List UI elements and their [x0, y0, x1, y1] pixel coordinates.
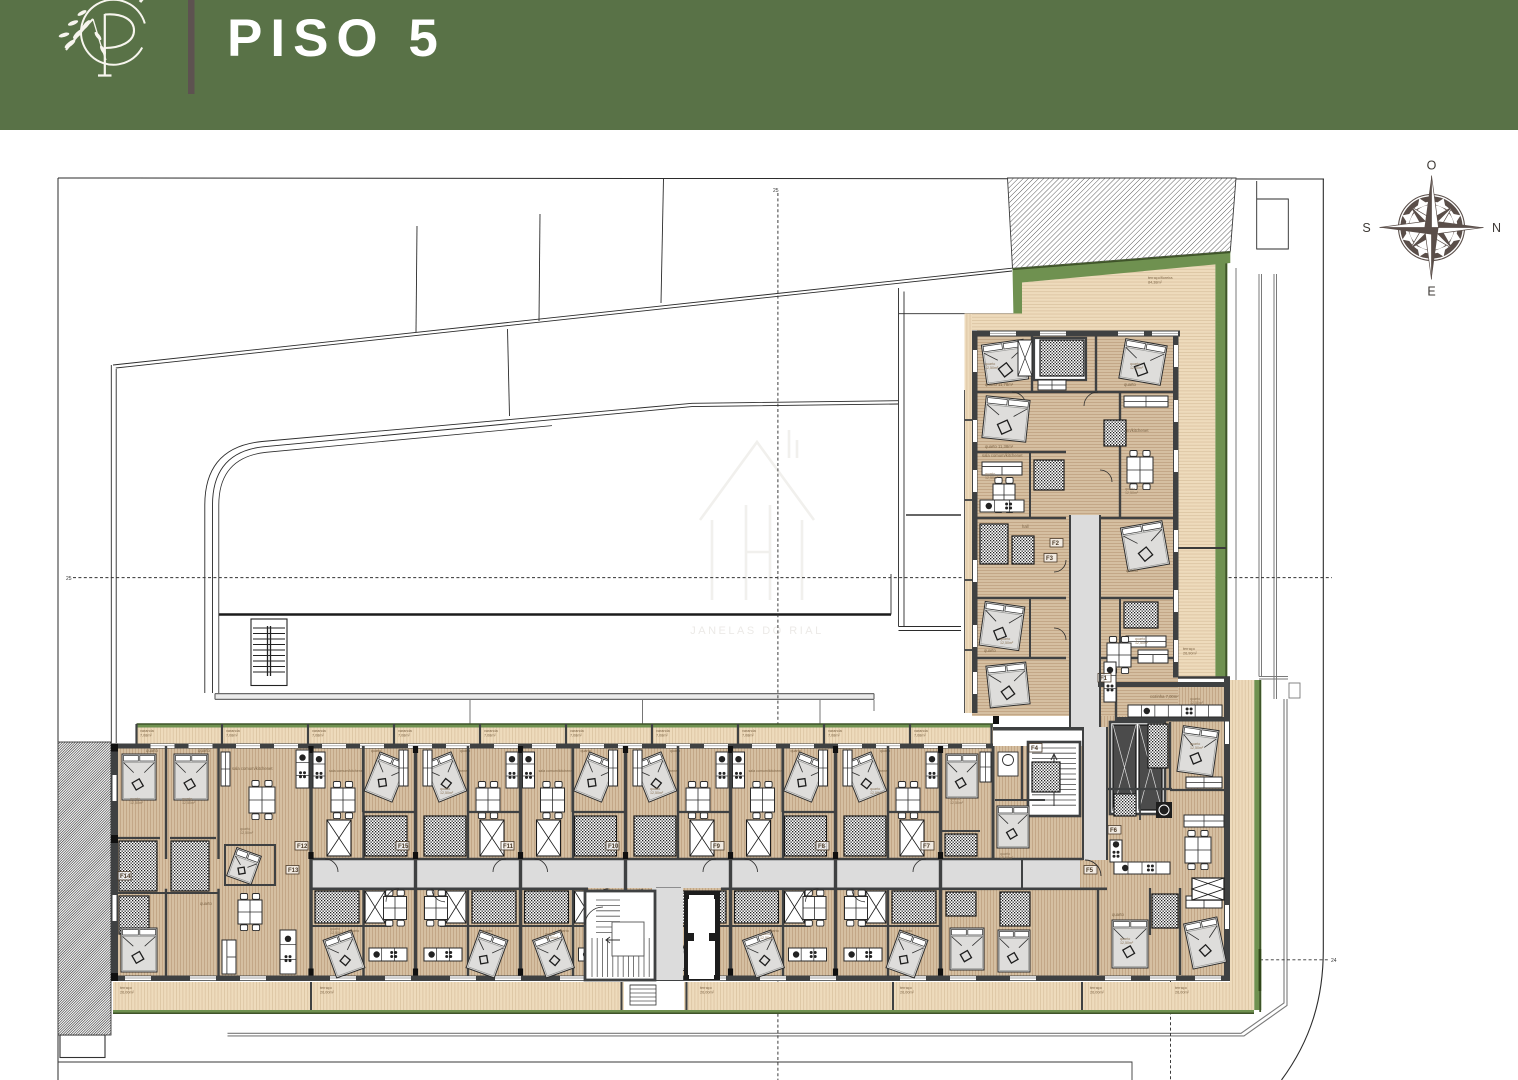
- svg-text:varanda: varanda: [398, 729, 413, 733]
- svg-text:12,50m²: 12,50m²: [440, 791, 454, 795]
- svg-text:12,50m²: 12,50m²: [330, 931, 344, 935]
- svg-text:terraço: terraço: [120, 986, 132, 990]
- svg-text:quarto: quarto: [146, 748, 159, 753]
- svg-text:S: S: [1362, 221, 1370, 235]
- svg-text:sala comum/kitchenet: sala comum/kitchenet: [982, 453, 1023, 458]
- svg-text:JANELAS DO RIAL: JANELAS DO RIAL: [690, 625, 823, 637]
- svg-text:F13: F13: [288, 868, 299, 874]
- svg-text:quarto: quarto: [1124, 382, 1137, 387]
- svg-text:26,00m²: 26,00m²: [320, 991, 335, 995]
- svg-text:7,08m²: 7,08m²: [828, 734, 841, 738]
- svg-text:25: 25: [773, 188, 779, 194]
- svg-text:quarto: quarto: [1126, 568, 1139, 573]
- svg-text:quarto: quarto: [791, 749, 801, 753]
- svg-text:12,50m²: 12,50m²: [1135, 641, 1149, 645]
- svg-text:sala comum/kitchenet: sala comum/kitchenet: [749, 769, 784, 773]
- svg-text:12,50m²: 12,50m²: [1120, 941, 1134, 945]
- svg-text:E: E: [1427, 285, 1435, 299]
- svg-text:varanda: varanda: [312, 729, 327, 733]
- svg-text:7,08m²: 7,08m²: [226, 734, 239, 738]
- svg-text:N: N: [1492, 221, 1501, 235]
- svg-text:7,08m²: 7,08m²: [656, 734, 669, 738]
- svg-text:12,50m²: 12,50m²: [1000, 641, 1014, 645]
- svg-text:sala comum/kitchenet: sala comum/kitchenet: [232, 766, 273, 771]
- svg-text:hall: hall: [1022, 524, 1029, 529]
- svg-text:84,38m²: 84,38m²: [1148, 281, 1163, 285]
- svg-text:12,50m²: 12,50m²: [985, 476, 999, 480]
- svg-text:12,50m²: 12,50m²: [650, 791, 664, 795]
- svg-text:F8: F8: [818, 844, 826, 850]
- svg-text:varanda: varanda: [484, 729, 499, 733]
- svg-text:12,50m²: 12,50m²: [870, 791, 884, 795]
- svg-text:12,50m²: 12,50m²: [950, 801, 964, 805]
- svg-text:quarto: quarto: [559, 929, 569, 933]
- svg-text:O: O: [1427, 159, 1437, 173]
- svg-text:terraço: terraço: [1183, 647, 1195, 651]
- svg-text:F15: F15: [398, 844, 409, 850]
- svg-text:quarto: quarto: [200, 901, 213, 906]
- svg-text:varanda: varanda: [226, 729, 241, 733]
- svg-text:F7: F7: [923, 844, 931, 850]
- svg-text:12,50m²: 12,50m²: [130, 801, 144, 805]
- svg-text:26,00m²: 26,00m²: [700, 991, 715, 995]
- svg-text:F4: F4: [1031, 746, 1039, 752]
- svg-text:quarto: quarto: [198, 748, 211, 753]
- svg-text:F11: F11: [503, 844, 514, 850]
- svg-text:12,50m²: 12,50m²: [240, 831, 254, 835]
- svg-text:terraço/floreira: terraço/floreira: [1148, 276, 1173, 280]
- svg-text:quarto 11,38m²: quarto 11,38m²: [985, 444, 1014, 449]
- svg-text:12,50m²: 12,50m²: [985, 366, 999, 370]
- svg-text:quarto: quarto: [349, 929, 359, 933]
- svg-text:26,90m²: 26,90m²: [1183, 652, 1198, 656]
- svg-text:quarto: quarto: [984, 648, 997, 653]
- svg-text:sala comum/kitchenet: sala comum/kitchenet: [329, 769, 364, 773]
- svg-text:26,00m²: 26,00m²: [1175, 991, 1190, 995]
- svg-text:F10: F10: [608, 844, 619, 850]
- svg-text:varanda: varanda: [656, 729, 671, 733]
- svg-text:7,08m²: 7,08m²: [140, 734, 153, 738]
- svg-text:12,50m²: 12,50m²: [1190, 746, 1204, 750]
- svg-text:12,50m²: 12,50m²: [760, 936, 774, 940]
- svg-text:varanda: varanda: [914, 729, 929, 733]
- svg-text:varanda: varanda: [140, 729, 155, 733]
- svg-text:12,50m²: 12,50m²: [182, 801, 196, 805]
- svg-text:26,00m²: 26,00m²: [120, 991, 135, 995]
- svg-text:F1: F1: [1100, 676, 1108, 682]
- svg-text:terraço: terraço: [1090, 986, 1102, 990]
- svg-text:7,08m²: 7,08m²: [312, 734, 325, 738]
- svg-text:PISO 5: PISO 5: [227, 9, 446, 68]
- svg-text:terraço: terraço: [900, 986, 912, 990]
- svg-text:12,50m²: 12,50m²: [1125, 491, 1139, 495]
- svg-text:terraço: terraço: [700, 986, 712, 990]
- svg-text:sala comum/kitchenet: sala comum/kitchenet: [539, 769, 574, 773]
- svg-text:cozinha 7,00m²: cozinha 7,00m²: [1150, 694, 1179, 699]
- svg-text:12,50m²: 12,50m²: [1190, 701, 1204, 705]
- svg-text:12,50m²: 12,50m²: [1000, 856, 1014, 860]
- svg-text:quarto: quarto: [902, 929, 912, 933]
- svg-text:quarto: quarto: [371, 749, 381, 753]
- svg-text:26,00m²: 26,00m²: [1090, 991, 1105, 995]
- svg-text:25: 25: [66, 576, 72, 582]
- svg-text:terraço: terraço: [1175, 986, 1187, 990]
- svg-text:12,50m²: 12,50m²: [1130, 366, 1144, 370]
- svg-text:7,08m²: 7,08m²: [914, 734, 927, 738]
- svg-text:7,08m²: 7,08m²: [398, 734, 411, 738]
- svg-text:varanda: varanda: [828, 729, 843, 733]
- svg-text:F12: F12: [297, 844, 308, 850]
- svg-text:quarto: quarto: [482, 929, 492, 933]
- svg-text:F14: F14: [120, 874, 131, 880]
- svg-text:varanda: varanda: [742, 729, 757, 733]
- svg-text:quarto: quarto: [1112, 912, 1125, 917]
- svg-text:quarto 11,78m²: quarto 11,78m²: [985, 382, 1014, 387]
- svg-text:24: 24: [1331, 958, 1337, 964]
- svg-text:F6: F6: [1110, 828, 1118, 834]
- svg-text:F9: F9: [713, 844, 721, 850]
- svg-text:F3: F3: [1046, 556, 1054, 562]
- svg-text:quarto: quarto: [581, 749, 591, 753]
- svg-text:7,08m²: 7,08m²: [570, 734, 583, 738]
- svg-text:F2: F2: [1052, 541, 1060, 547]
- svg-text:7,08m²: 7,08m²: [742, 734, 755, 738]
- svg-text:F5: F5: [1086, 868, 1094, 874]
- svg-text:terraço: terraço: [320, 986, 332, 990]
- svg-text:varanda: varanda: [570, 729, 585, 733]
- svg-text:26,00m²: 26,00m²: [900, 991, 915, 995]
- svg-text:12,50m²: 12,50m²: [545, 936, 559, 940]
- svg-text:7,08m²: 7,08m²: [484, 734, 497, 738]
